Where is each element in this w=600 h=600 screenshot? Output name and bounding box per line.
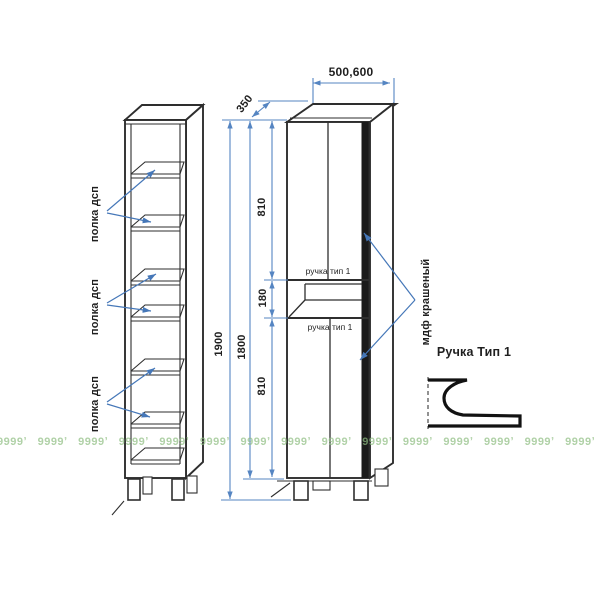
cabinet-side-panel <box>370 104 393 478</box>
material-label: мдф крашеный <box>420 259 432 346</box>
left-unit-back-leg-2 <box>187 476 197 493</box>
left-unit-front-leg-2 <box>172 479 184 500</box>
dim-upper-door-label: 810 <box>256 198 268 217</box>
left-unit-back-leg-1 <box>143 477 152 494</box>
cabinet-side-edge-band <box>362 122 369 478</box>
handle-profile-outline <box>428 380 520 426</box>
furniture-technical-drawing: 500,600 350 1900 1800 810 180 810 полка … <box>0 0 600 600</box>
dim-total-height-label: 1900 <box>213 331 225 356</box>
cabinet-floor-line <box>271 483 290 497</box>
cabinet-front-leg-2 <box>354 481 368 500</box>
dim-line-depth <box>252 102 270 117</box>
shelf-label-1: полка дсп <box>89 186 101 242</box>
handle-profile-detail <box>428 377 520 429</box>
left-unit-front-leg-1 <box>128 479 140 500</box>
shelf-label-3: полка дсп <box>89 376 101 432</box>
shelf-label-2: полка дсп <box>89 279 101 335</box>
handle-label-lower: ручка тип 1 <box>308 322 353 332</box>
left-unit-side-panel <box>186 105 203 478</box>
cabinet-middle-foot <box>313 481 330 490</box>
handle-detail-title: Ручка Тип 1 <box>437 345 511 359</box>
handle-label-upper: ручка тип 1 <box>306 266 351 276</box>
dim-drawer-label: 180 <box>257 289 269 308</box>
cabinet-front-leg-1 <box>294 481 308 500</box>
dim-body-height-label: 1800 <box>236 334 248 359</box>
cabinet-side-leg <box>375 469 388 486</box>
dim-width-label: 500,600 <box>329 65 374 79</box>
left-shelf-unit <box>112 105 203 515</box>
watermark-row: 9999ʼ 9999ʼ 9999ʼ 9999ʼ 9999ʼ 9999ʼ 9999… <box>0 436 600 452</box>
left-unit-floor-line <box>112 501 124 515</box>
dim-lower-door-label: 810 <box>256 377 268 396</box>
